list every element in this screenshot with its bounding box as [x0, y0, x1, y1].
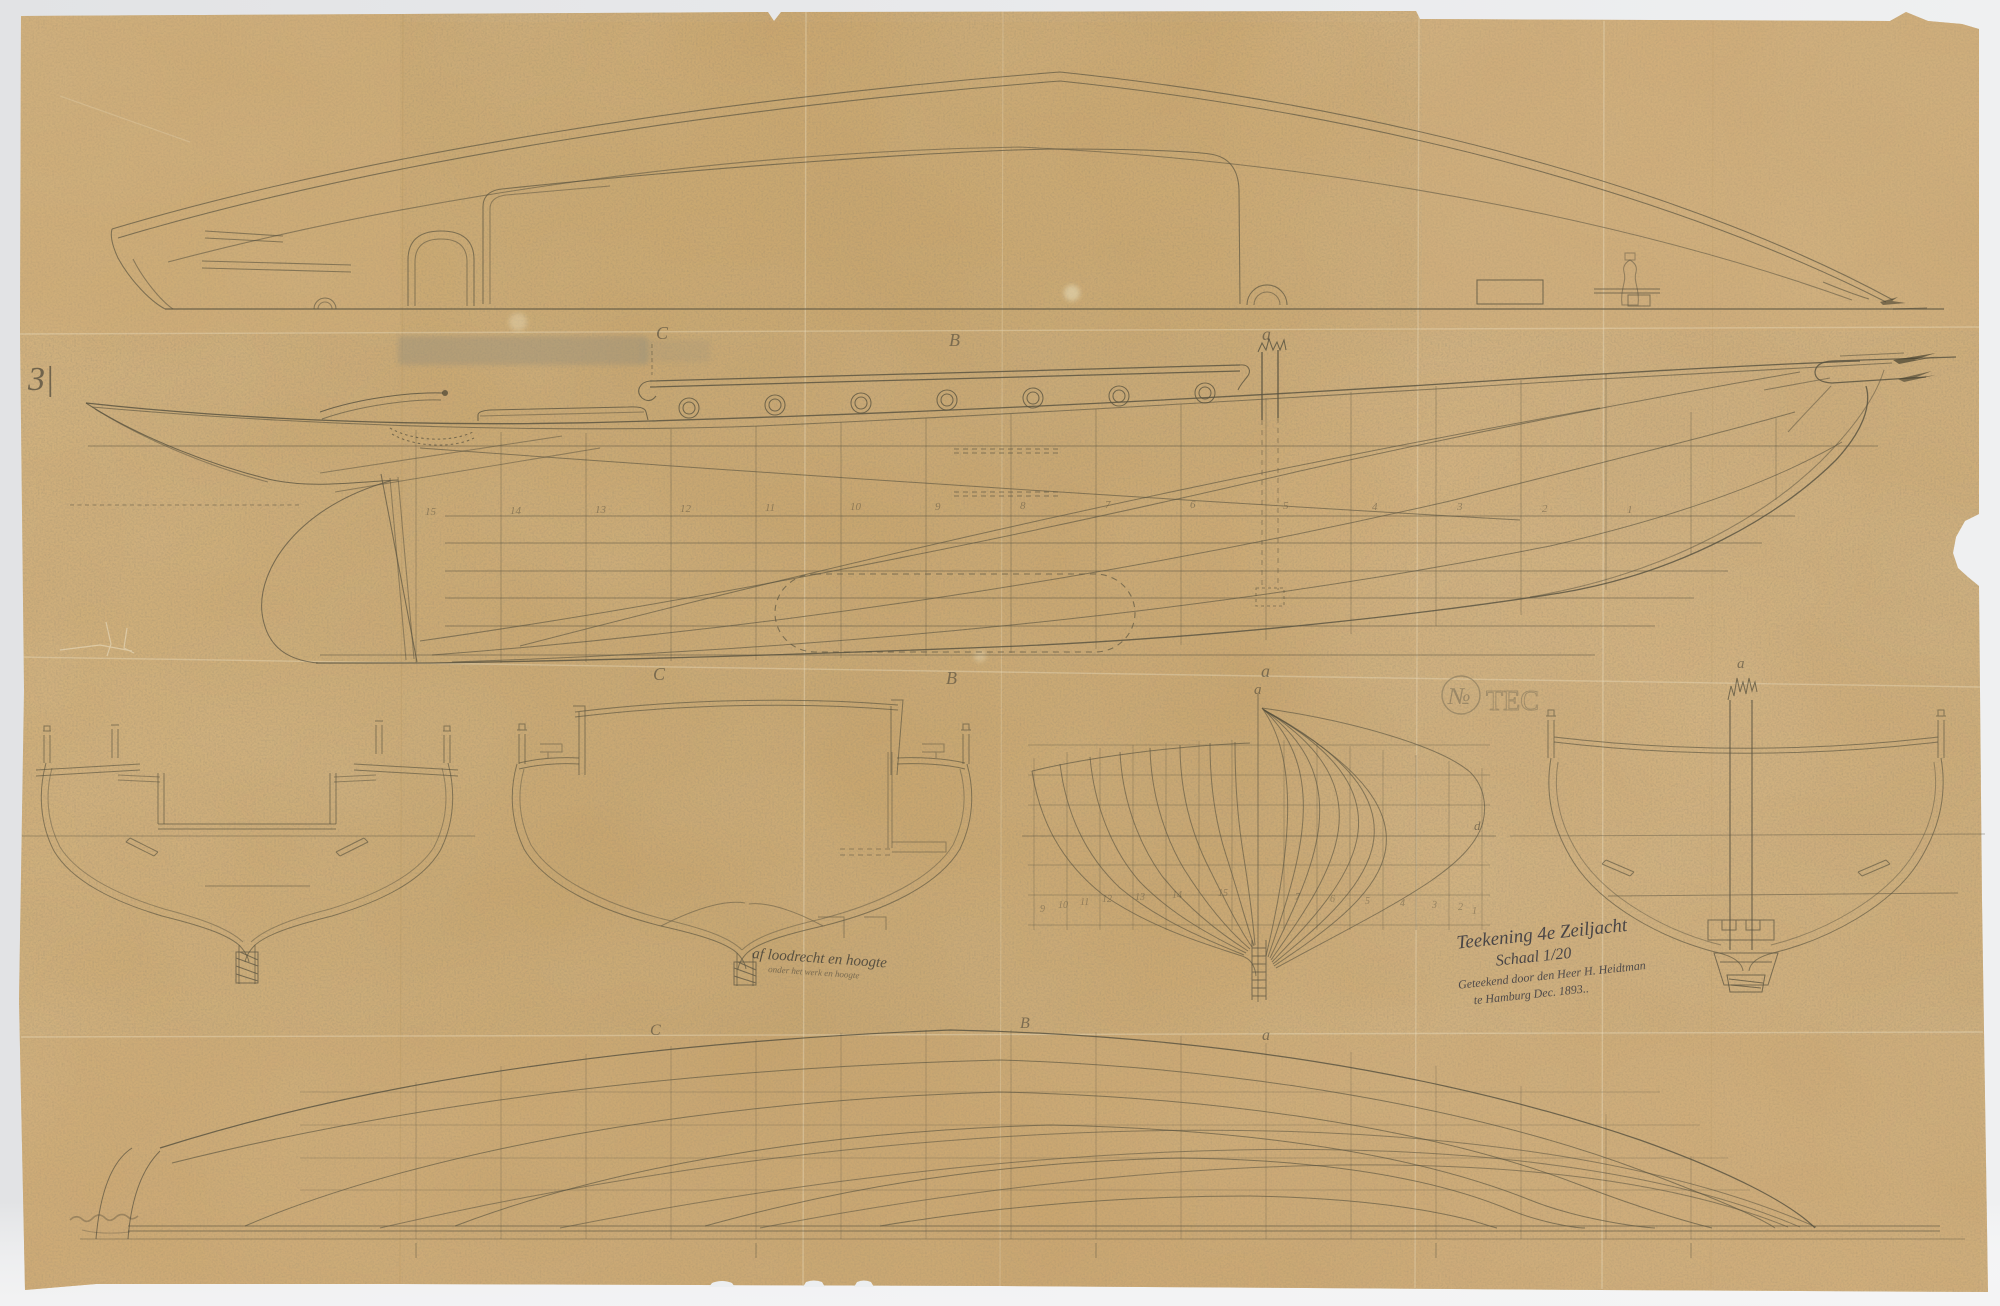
svg-text:№: № — [1447, 684, 1471, 710]
svg-text:8: 8 — [1020, 500, 1026, 512]
svg-text:C: C — [656, 323, 669, 343]
svg-text:12: 12 — [1102, 894, 1112, 905]
svg-text:10: 10 — [1058, 900, 1068, 911]
svg-text:3|: 3| — [27, 361, 54, 398]
svg-text:10: 10 — [850, 501, 862, 513]
svg-text:1: 1 — [1472, 906, 1477, 917]
svg-text:15: 15 — [425, 506, 437, 518]
svg-text:B: B — [949, 330, 960, 350]
svg-text:B: B — [946, 668, 957, 688]
svg-text:3: 3 — [1431, 900, 1437, 911]
svg-text:6: 6 — [1330, 894, 1335, 905]
svg-text:a: a — [1261, 661, 1270, 681]
svg-text:15: 15 — [1218, 888, 1228, 899]
svg-text:a: a — [1254, 682, 1262, 698]
svg-text:d: d — [1474, 818, 1481, 833]
svg-text:14: 14 — [510, 505, 522, 517]
svg-text:11: 11 — [1080, 897, 1089, 908]
svg-text:9: 9 — [935, 501, 941, 513]
svg-text:2: 2 — [1458, 902, 1463, 913]
svg-text:a: a — [1737, 656, 1745, 672]
svg-text:4: 4 — [1372, 501, 1378, 513]
svg-text:1: 1 — [1627, 504, 1633, 516]
svg-text:14: 14 — [1172, 890, 1182, 901]
svg-text:13: 13 — [1135, 892, 1145, 903]
svg-text:9: 9 — [1040, 904, 1045, 915]
svg-text:5: 5 — [1365, 896, 1370, 907]
svg-text:6: 6 — [1190, 499, 1196, 511]
svg-text:2: 2 — [1542, 503, 1548, 515]
svg-text:3: 3 — [1456, 501, 1463, 513]
svg-text:4: 4 — [1400, 898, 1405, 909]
svg-text:TEC: TEC — [1486, 686, 1539, 717]
svg-text:11: 11 — [765, 502, 775, 514]
svg-text:13: 13 — [595, 504, 607, 516]
svg-text:C: C — [650, 1022, 661, 1039]
svg-text:5: 5 — [1283, 500, 1289, 512]
svg-text:C: C — [653, 664, 666, 684]
svg-text:a: a — [1262, 1027, 1270, 1044]
svg-text:B: B — [1020, 1015, 1030, 1032]
svg-text:a: a — [1262, 324, 1271, 344]
svg-text:12: 12 — [680, 503, 692, 515]
svg-text:7: 7 — [1105, 499, 1111, 511]
